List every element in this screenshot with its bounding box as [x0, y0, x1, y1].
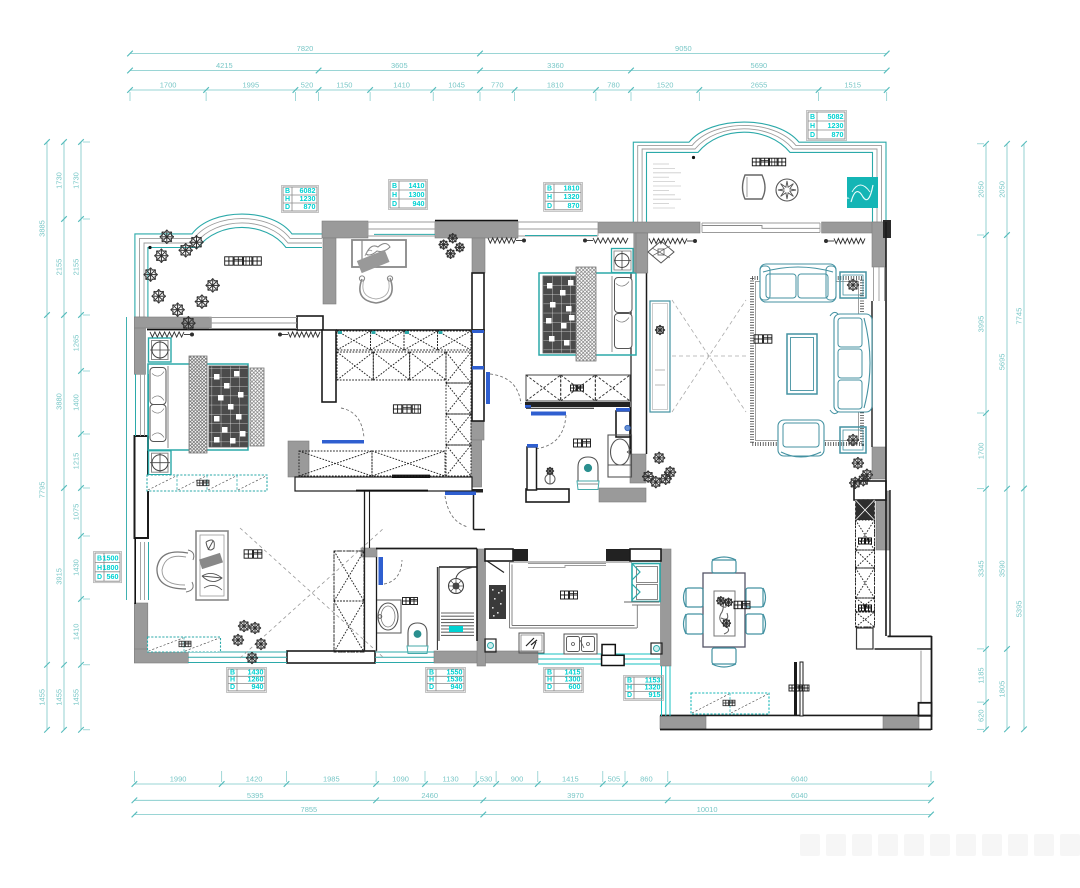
svg-text:780: 780	[607, 81, 620, 90]
svg-text:1410: 1410	[409, 181, 425, 190]
svg-text:B: B	[627, 677, 632, 684]
svg-text:4215: 4215	[216, 61, 233, 70]
svg-text:505: 505	[608, 775, 621, 784]
svg-text:B: B	[285, 188, 290, 195]
svg-text:940: 940	[413, 199, 425, 208]
svg-text:2460: 2460	[421, 791, 438, 800]
svg-text:7745: 7745	[1015, 308, 1024, 325]
svg-text:H: H	[285, 196, 290, 203]
svg-text:3880: 3880	[55, 393, 64, 410]
svg-text:D: D	[230, 684, 235, 691]
svg-text:H: H	[547, 194, 552, 201]
svg-text:D: D	[429, 684, 434, 691]
svg-text:B: B	[547, 186, 552, 193]
svg-text:1300: 1300	[409, 190, 425, 199]
svg-text:3995: 3995	[977, 316, 986, 333]
svg-text:1410: 1410	[393, 81, 410, 90]
svg-text:5395: 5395	[1015, 601, 1024, 618]
svg-text:1215: 1215	[72, 453, 81, 470]
svg-text:H: H	[810, 123, 815, 130]
svg-text:B: B	[547, 669, 552, 676]
svg-text:3360: 3360	[547, 61, 564, 70]
svg-text:1455: 1455	[72, 689, 81, 706]
svg-text:D: D	[285, 204, 290, 211]
svg-text:3590: 3590	[998, 560, 1007, 577]
svg-text:5082: 5082	[828, 112, 844, 121]
svg-text:1520: 1520	[657, 81, 674, 90]
svg-text:2155: 2155	[72, 259, 81, 276]
svg-text:2050: 2050	[998, 181, 1007, 198]
svg-text:10010: 10010	[697, 805, 718, 814]
svg-text:3915: 3915	[55, 568, 64, 585]
svg-text:D: D	[547, 203, 552, 210]
svg-text:3885: 3885	[38, 220, 47, 237]
svg-text:D: D	[627, 692, 632, 699]
svg-text:D: D	[97, 574, 102, 581]
svg-text:H: H	[429, 677, 434, 684]
svg-text:5690: 5690	[751, 61, 768, 70]
svg-text:1230: 1230	[828, 121, 844, 130]
svg-text:1185: 1185	[977, 667, 986, 683]
svg-text:1455: 1455	[38, 689, 47, 706]
svg-text:560: 560	[107, 572, 119, 581]
svg-text:1075: 1075	[72, 504, 81, 521]
svg-text:870: 870	[304, 202, 316, 211]
svg-text:B: B	[230, 669, 235, 676]
svg-text:1045: 1045	[448, 81, 465, 90]
svg-text:3345: 3345	[977, 560, 986, 577]
svg-text:5695: 5695	[998, 354, 1007, 371]
svg-text:3970: 3970	[567, 791, 584, 800]
svg-text:D: D	[810, 132, 815, 139]
svg-text:620: 620	[977, 709, 986, 722]
svg-text:520: 520	[301, 81, 314, 90]
svg-text:D: D	[547, 684, 552, 691]
svg-text:H: H	[392, 192, 397, 199]
svg-text:5395: 5395	[247, 791, 264, 800]
svg-text:1420: 1420	[246, 775, 263, 784]
svg-text:1995: 1995	[242, 81, 259, 90]
svg-text:9050: 9050	[675, 44, 692, 53]
svg-text:870: 870	[832, 130, 844, 139]
svg-text:D: D	[392, 201, 397, 208]
svg-text:860: 860	[640, 775, 653, 784]
svg-text:1730: 1730	[55, 172, 64, 189]
svg-text:940: 940	[451, 682, 463, 691]
svg-text:B: B	[810, 114, 815, 121]
svg-text:H: H	[627, 685, 632, 692]
svg-text:1810: 1810	[547, 81, 564, 90]
svg-text:H: H	[230, 677, 235, 684]
svg-text:600: 600	[569, 682, 581, 691]
svg-text:1415: 1415	[562, 775, 579, 784]
svg-text:7795: 7795	[38, 482, 47, 499]
svg-text:1410: 1410	[72, 624, 81, 641]
svg-text:H: H	[547, 677, 552, 684]
svg-text:1500: 1500	[103, 553, 119, 562]
svg-text:1700: 1700	[160, 81, 177, 90]
svg-text:P: P	[846, 196, 851, 199]
svg-text:2050: 2050	[977, 181, 986, 198]
svg-text:1700: 1700	[977, 443, 986, 460]
svg-text:7820: 7820	[297, 44, 314, 53]
svg-text:1800: 1800	[103, 563, 119, 572]
svg-text:6040: 6040	[791, 775, 808, 784]
svg-text:900: 900	[511, 775, 524, 784]
svg-text:940: 940	[252, 682, 264, 691]
svg-text:870: 870	[568, 201, 580, 210]
svg-text:1990: 1990	[170, 775, 187, 784]
svg-text:1730: 1730	[72, 172, 81, 189]
svg-text:1455: 1455	[55, 689, 64, 706]
svg-text:1150: 1150	[336, 81, 352, 90]
svg-text:3605: 3605	[391, 61, 408, 70]
svg-text:1265: 1265	[72, 335, 81, 352]
svg-text:1985: 1985	[323, 775, 340, 784]
svg-text:6040: 6040	[791, 791, 808, 800]
svg-text:B: B	[392, 183, 397, 190]
svg-text:1430: 1430	[72, 559, 81, 576]
svg-text:1090: 1090	[392, 775, 409, 784]
svg-text:1805: 1805	[998, 681, 1007, 698]
svg-text:915: 915	[649, 690, 661, 699]
svg-text:2655: 2655	[751, 81, 768, 90]
svg-text:7855: 7855	[301, 805, 318, 814]
svg-text:770: 770	[491, 81, 504, 90]
svg-text:2155: 2155	[55, 259, 64, 276]
svg-text:B: B	[429, 669, 434, 676]
svg-text:1400: 1400	[72, 394, 81, 411]
svg-text:H: H	[97, 565, 102, 572]
svg-text:530: 530	[480, 775, 493, 784]
svg-text:1130: 1130	[443, 775, 459, 784]
svg-text:B: B	[97, 555, 102, 562]
svg-text:1515: 1515	[844, 81, 861, 90]
